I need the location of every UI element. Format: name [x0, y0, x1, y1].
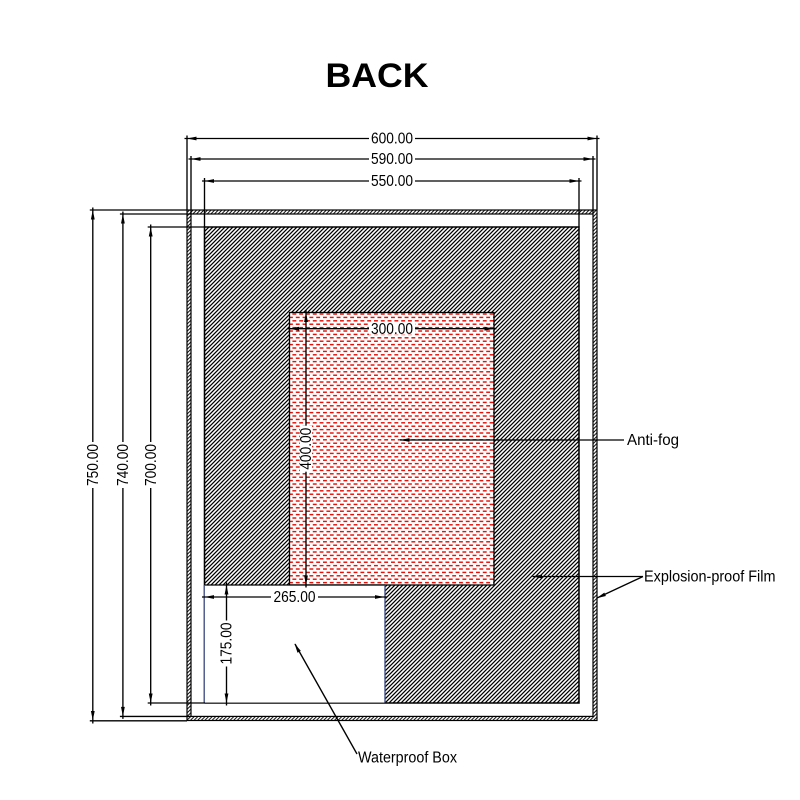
svg-text:Waterproof Box: Waterproof Box — [358, 750, 457, 767]
svg-text:Explosion-proof Film: Explosion-proof Film — [644, 569, 776, 586]
svg-text:BACK: BACK — [326, 57, 429, 95]
svg-text:Anti-fog: Anti-fog — [627, 432, 679, 449]
svg-text:550.00: 550.00 — [371, 173, 413, 190]
svg-text:300.00: 300.00 — [371, 321, 413, 338]
svg-text:400.00: 400.00 — [298, 428, 315, 470]
svg-text:590.00: 590.00 — [371, 151, 413, 168]
svg-text:700.00: 700.00 — [143, 444, 160, 486]
svg-text:265.00: 265.00 — [274, 589, 316, 606]
svg-text:750.00: 750.00 — [85, 444, 102, 486]
svg-text:600.00: 600.00 — [371, 131, 413, 148]
svg-text:175.00: 175.00 — [219, 622, 236, 664]
svg-text:740.00: 740.00 — [115, 444, 132, 486]
